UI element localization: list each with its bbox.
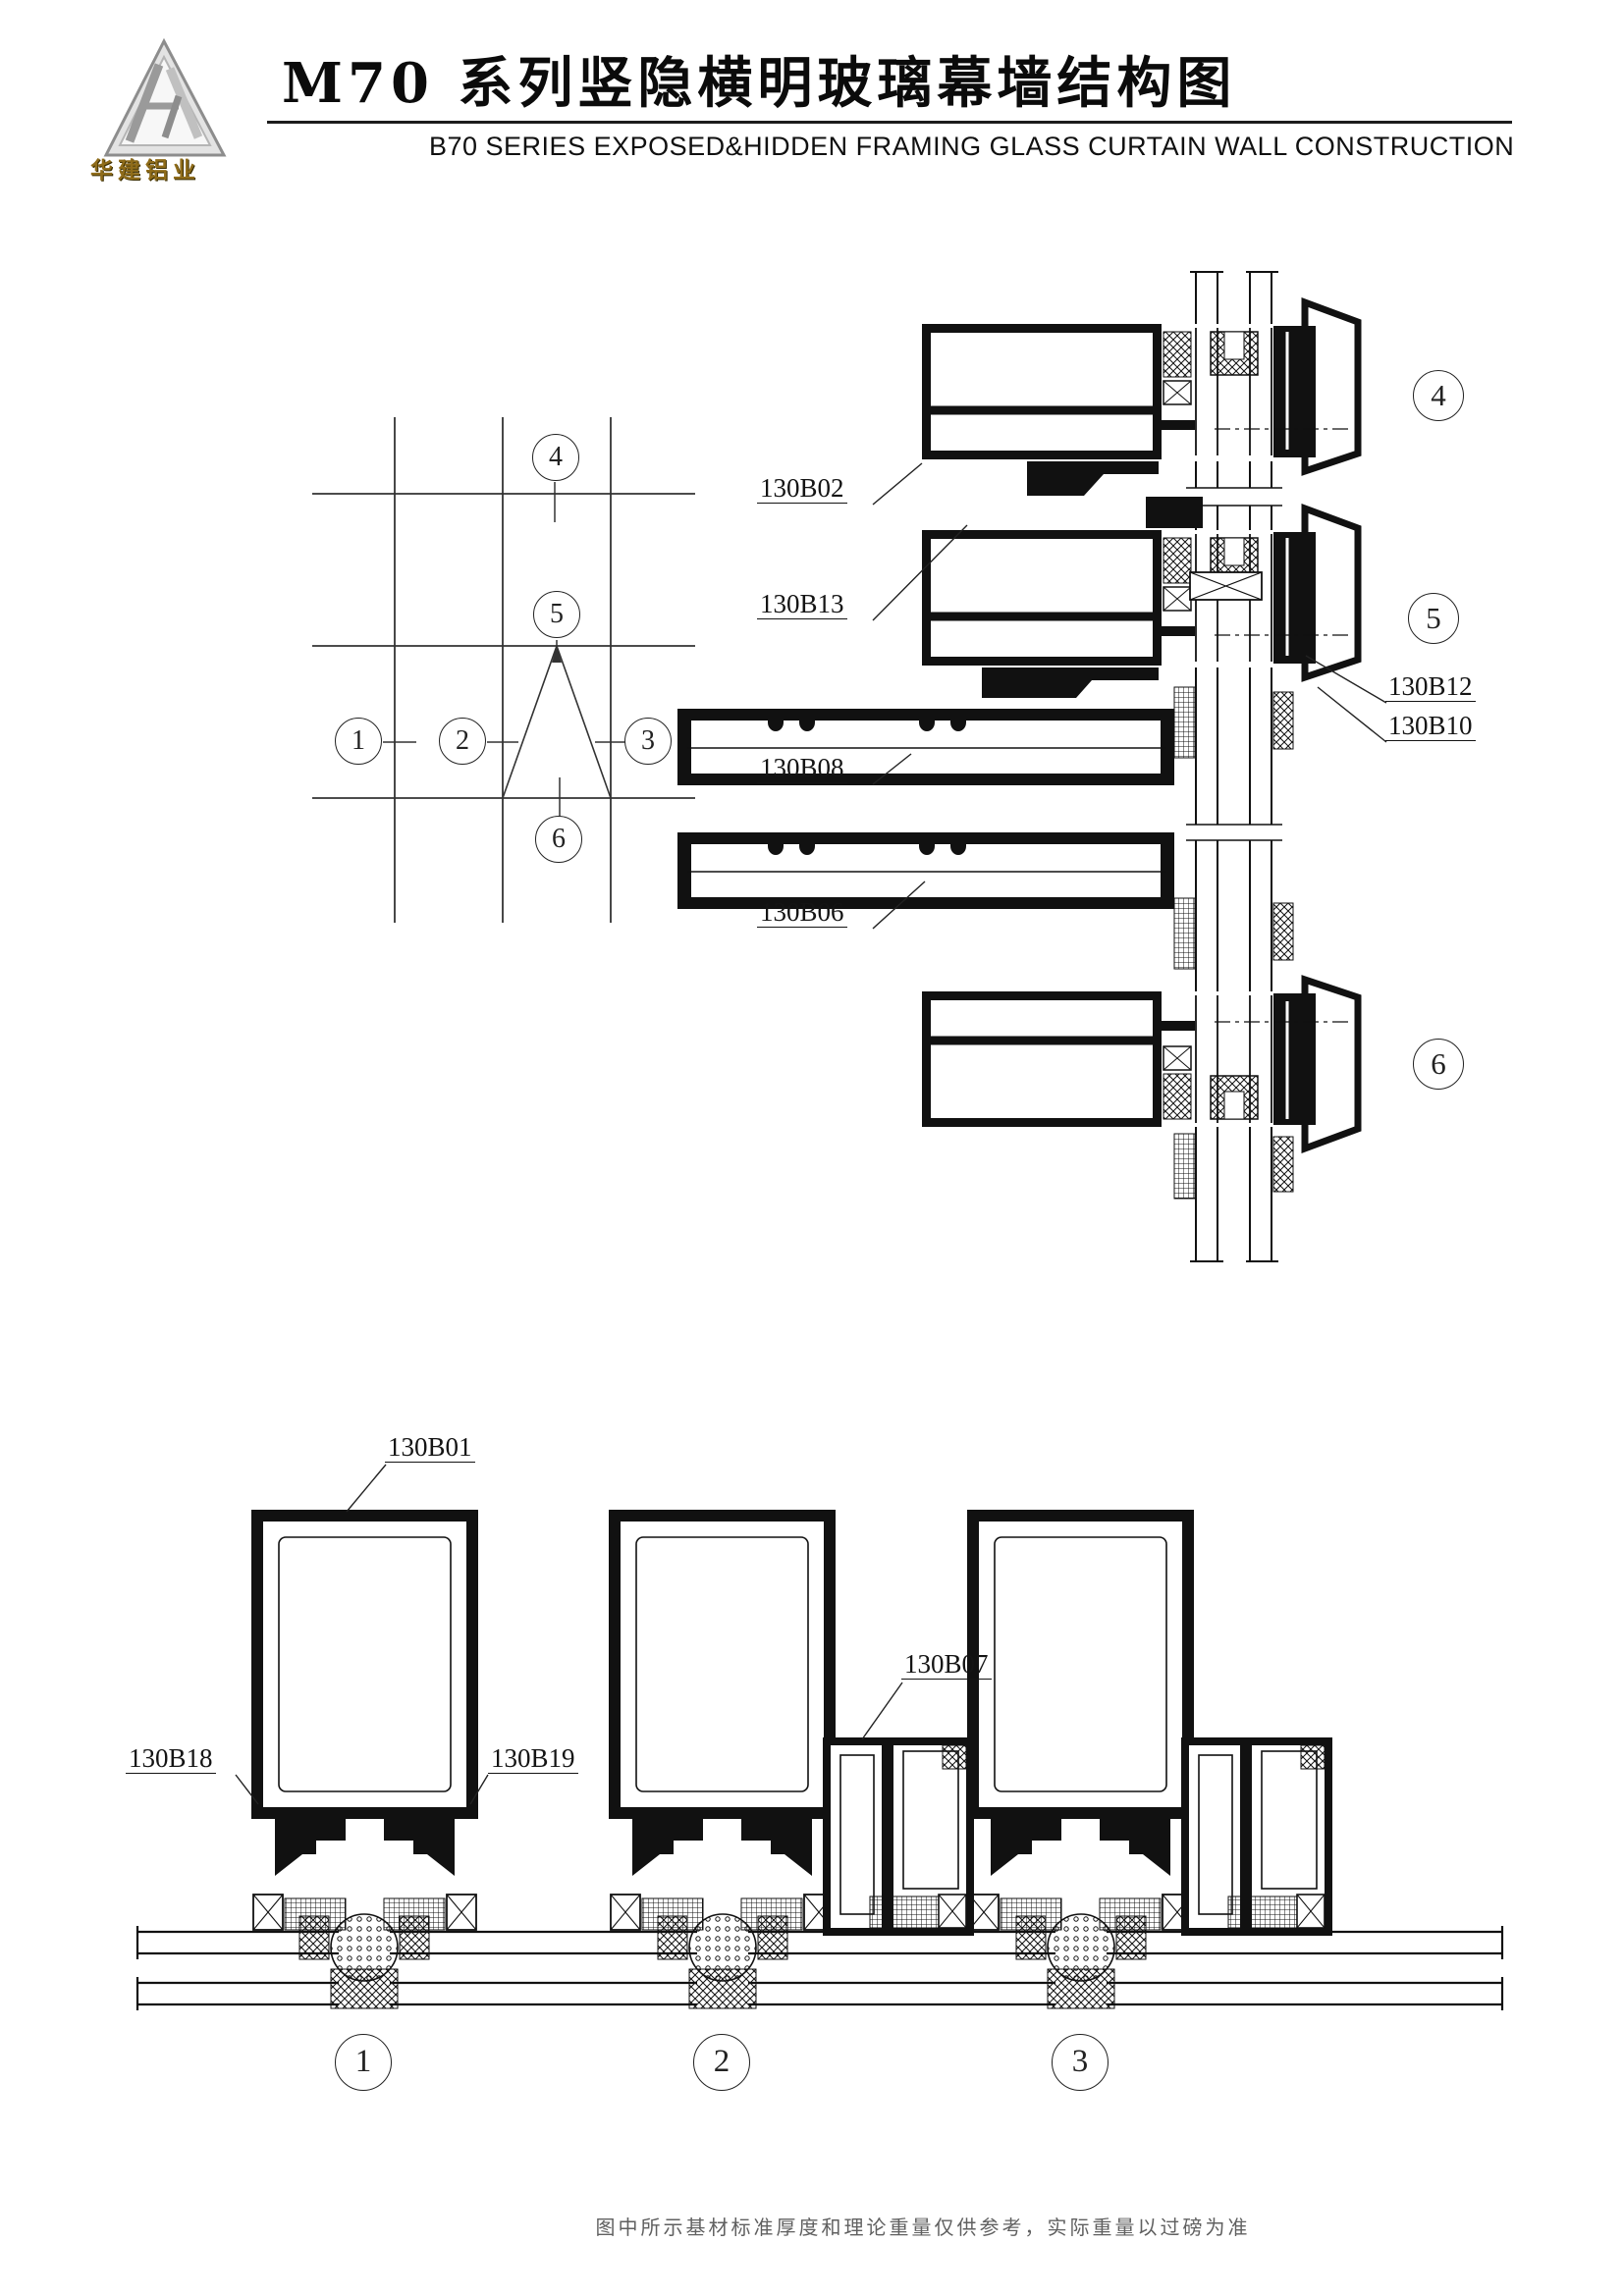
part-label-130B01: 130B01	[385, 1434, 475, 1463]
key-circle-2: 2	[439, 718, 486, 765]
operable-rail-upper	[677, 709, 1174, 785]
key-circle-4: 4	[532, 434, 579, 481]
brand-name: 华建铝业	[90, 151, 200, 185]
mullion-sections-drawing	[98, 1414, 1532, 2101]
part-label-130B18: 130B18	[126, 1745, 216, 1774]
part-label-130B08: 130B08	[757, 755, 847, 783]
drawing-sheet: 华建铝业 M70 系列竖隐横明玻璃幕墙结构图 B70 SERIES EXPOSE…	[0, 0, 1623, 2296]
section-3-mullion	[969, 1516, 1192, 1930]
section-3-vent-frame	[1185, 1741, 1328, 1932]
section-2-vent-frame	[827, 1741, 970, 1932]
glass-joint-1	[299, 1914, 429, 2008]
section-1-mullion	[253, 1516, 476, 1930]
section-6-profile	[927, 980, 1359, 1148]
glass-joint-2	[658, 1914, 787, 2008]
section-2-mullion	[611, 1516, 834, 1930]
sheet-title: M70 系列竖隐横明玻璃幕墙结构图	[282, 39, 1236, 119]
key-circle-1: 1	[335, 718, 382, 765]
footer-note: 图中所示基材标准厚度和理论重量仅供参考，实际重量以过磅为准	[535, 2212, 1311, 2240]
detail-circle-6: 6	[1413, 1039, 1464, 1090]
section-5-lower-adapter	[982, 667, 1159, 698]
operable-rail-lower	[677, 832, 1174, 909]
part-label-130B07: 130B07	[901, 1651, 992, 1680]
section-5-profile	[927, 508, 1359, 677]
detail-circle-4: 4	[1413, 370, 1464, 421]
detail-circle-1: 1	[335, 2034, 392, 2091]
detail-circle-3: 3	[1052, 2034, 1109, 2091]
detail-circle-5: 5	[1408, 593, 1459, 644]
key-circle-5: 5	[533, 591, 580, 638]
hj-triangle-logo	[69, 35, 236, 159]
part-label-130B13: 130B13	[757, 591, 847, 619]
detail-circle-2: 2	[693, 2034, 750, 2091]
key-circle-6: 6	[535, 816, 582, 863]
part-label-130B02: 130B02	[757, 475, 847, 504]
section-4-profile	[927, 302, 1359, 471]
part-label-130B06: 130B06	[757, 899, 847, 928]
part-label-130B19: 130B19	[488, 1745, 578, 1774]
sheet-subtitle: B70 SERIES EXPOSED&HIDDEN FRAMING GLASS …	[429, 132, 1514, 162]
title-divider	[267, 121, 1512, 124]
glass-joint-3	[1016, 1914, 1146, 2008]
part-label-130B12: 130B12	[1385, 673, 1476, 702]
part-label-130B10: 130B10	[1385, 713, 1476, 741]
section-5-upper-adapter	[1146, 497, 1203, 528]
section-4-lower-adapter	[1027, 461, 1159, 496]
